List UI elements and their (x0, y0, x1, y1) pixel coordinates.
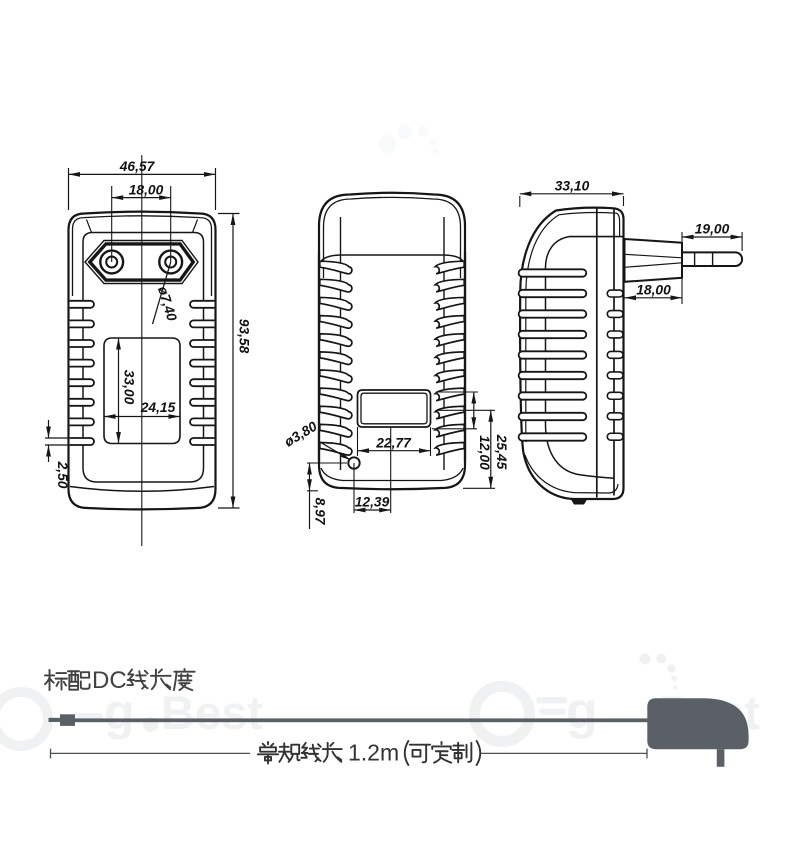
svg-text:33,10: 33,10 (555, 179, 590, 194)
svg-text:12,00: 12,00 (477, 435, 492, 470)
svg-text:19,00: 19,00 (695, 222, 730, 237)
svg-text:1.2m: 1.2m (348, 740, 399, 766)
svg-text:18,00: 18,00 (129, 183, 164, 198)
svg-text:25,45: 25,45 (494, 434, 509, 470)
svg-text:22,77: 22,77 (375, 436, 412, 451)
svg-text:8,97: 8,97 (313, 498, 328, 526)
svg-text:2,50: 2,50 (55, 461, 70, 489)
svg-text:18,00: 18,00 (636, 283, 671, 298)
svg-text:g: g (566, 682, 598, 740)
svg-text:93,58: 93,58 (237, 319, 252, 354)
svg-text:DC: DC (92, 667, 127, 694)
svg-text:46,57: 46,57 (119, 159, 156, 174)
svg-text:24,15: 24,15 (140, 400, 176, 415)
svg-text:33,00: 33,00 (122, 370, 137, 405)
svg-text:12,39: 12,39 (355, 495, 390, 510)
svg-text:Best: Best (161, 686, 263, 739)
svg-text:ø3,80: ø3,80 (282, 418, 320, 449)
